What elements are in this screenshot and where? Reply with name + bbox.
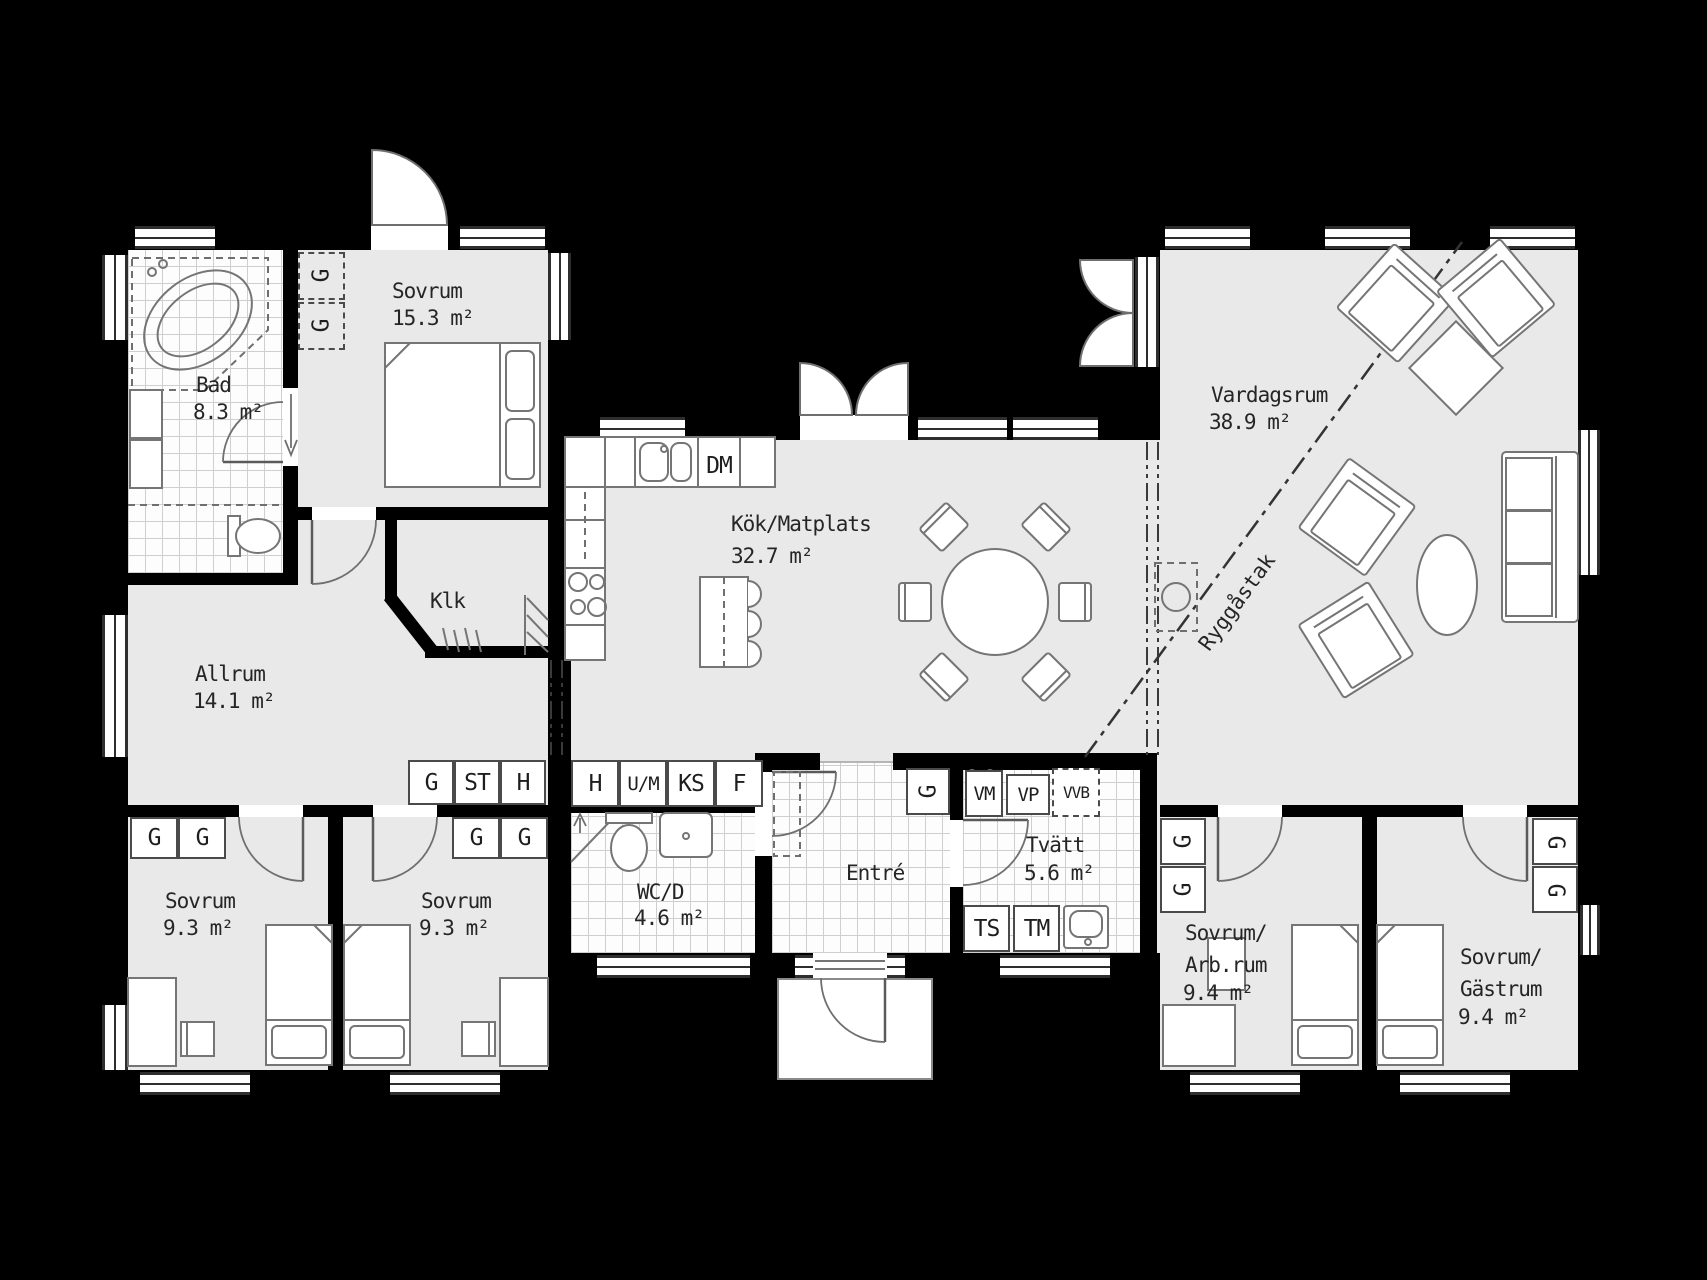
closet-label: G [196,825,209,851]
door-gap-arbrum [1218,805,1282,817]
label-sovrum-v-area: 9.3 m² [163,915,233,941]
label-wcd-area: 4.6 m² [634,905,704,931]
cabinet-label: H [589,771,602,797]
closet-label: G [1170,835,1196,848]
vvb-label: VVB [1063,783,1089,802]
door-gap-bedroom-left-2 [373,805,437,817]
closet-label: H [517,770,530,796]
door-gap-sovrum-stor [312,507,376,520]
label-vardagsrum-name: Vardagsrum [1211,382,1327,408]
closet-g-bedroom-left-1b: G [178,817,226,859]
window-gastrum-right [1580,905,1600,955]
closet-label: G [1170,883,1196,896]
wall-under-kitchen-cabinets [571,807,772,813]
closet-label: G [308,270,334,283]
washer-vm: VM [965,770,1003,817]
window-livingroom-top-2 [1325,226,1410,249]
vp-label: VP [1018,784,1039,806]
wall-klk-left [385,520,397,600]
label-sovrum-stor-area: 15.3 m² [392,305,474,331]
cabinet-kok-ks: KS [667,760,715,807]
dryingcabinet-ts: TS [963,905,1010,952]
dishwasher-dm: DM [698,448,740,484]
label-gastrum-line1: Sovrum/ [1460,944,1542,970]
label-kok-name: Kök/Matplats [731,511,871,537]
wall-bedrooms-left-divider [328,817,343,1070]
wall-right-exterior [1578,225,1600,1095]
closet-g-sovrum-stor-1: G [298,252,345,300]
window-livingroom-top-3 [1490,226,1575,249]
window-livingroom-top-1 [1165,226,1250,249]
floor-kitchen [571,440,1147,763]
label-klk: Klk [430,588,465,614]
label-sovrum-h-area: 9.3 m² [419,915,489,941]
window-bedroom-left-2 [390,1072,500,1095]
closet-g-bedroom-left-1a: G [130,817,178,859]
label-gastrum-line2: Gästrum [1460,976,1542,1002]
closet-label: G [1542,835,1568,848]
closet-g-arbrum-1: G [1160,818,1206,865]
closet-row-allrum-st: ST [454,760,500,805]
label-sovrum-stor-name: Sovrum [392,278,462,304]
tm-label: TM [1024,916,1050,942]
cabinet-label: U/M [627,773,658,795]
cabinet-label: KS [678,771,704,797]
closet-label: G [425,770,438,796]
door-entre-main [813,953,887,978]
closet-g-arbrum-2: G [1160,866,1206,913]
closet-row-allrum-g: G [408,760,454,805]
sidelight-entre-right [887,955,905,978]
cabinet-kok-h: H [571,760,619,807]
wall-entre-top-left [755,753,820,770]
cabinet-label: F [733,771,746,797]
label-arbrum-line1: Sovrum/ [1185,920,1267,946]
door-gap-gastrum [1463,805,1527,817]
window-allrum-left [102,615,128,757]
tumbledryer-tm: TM [1013,905,1060,952]
window-sovrum-stor-top [460,226,545,249]
door-gap-bad [283,388,298,466]
window-sovrum-stor-right [548,253,571,340]
closet-label: G [915,785,941,798]
closet-g-bedroom-left-2b: G [500,817,548,859]
window-bedroom-left-1 [140,1072,250,1095]
window-matplats-2 [1013,417,1098,440]
cabinet-kok-um: U/M [619,760,667,807]
door-livingroom-west [1135,257,1159,367]
waterheater-vvb: VVB [1052,768,1100,817]
heatpump-vp: VP [1006,774,1050,815]
label-allrum-name: Allrum [195,661,265,687]
window-kitchen-1 [600,417,685,440]
window-bad-left [102,255,128,340]
label-tvatt-area: 5.6 m² [1024,860,1094,886]
label-arbrum-area: 9.4 m² [1183,980,1253,1006]
wall-bad-bottom [102,573,298,585]
window-livingroom-right [1578,430,1600,575]
closet-label: G [518,825,531,851]
window-bedroom-left-corner [102,1005,128,1070]
closet-label: G [470,825,483,851]
label-allrum-area: 14.1 m² [193,688,275,714]
wall-tvatt-right [1140,770,1157,953]
door-gap-bedroom-left-1 [239,805,303,817]
label-bad-name: Bad [196,372,231,398]
window-bad-top [135,226,215,249]
wall-bedrooms-left-top [128,805,571,817]
sidelight-entre-left [795,955,813,978]
label-vardagsrum-area: 38.9 m² [1209,409,1291,435]
vm-label: VM [974,783,995,805]
label-sovrum-v-name: Sovrum [165,888,235,914]
label-bad-area: 8.3 m² [193,399,263,425]
closet-label: G [148,825,161,851]
label-tvatt-name: Tvätt [1026,832,1084,858]
wall-bedrooms-right-divider [1362,817,1377,1070]
closet-g-gastrum-2: G [1532,866,1578,913]
door-wedges-livingroom-west [1080,260,1133,366]
closet-g-bedroom-left-2a: G [452,817,500,859]
window-tvatt-south [1000,955,1110,978]
label-arbrum-line2: Arb.rum [1185,952,1267,978]
window-arbrum-south [1190,1072,1300,1095]
window-gastrum-south [1400,1072,1510,1095]
cabinet-kok-f: F [715,760,763,807]
entry-porch [777,978,933,1080]
door-kitchen-terrace [800,415,908,440]
closet-g-sovrum-stor-2: G [298,302,345,350]
door-sovrum-stor-exterior [371,225,448,250]
ts-label: TS [974,916,1000,942]
window-matplats-1 [918,417,1007,440]
closet-row-allrum-h: H [500,760,546,805]
label-kok-area: 32.7 m² [731,543,813,569]
door-wedges-kitchen-terrace [800,363,908,415]
closet-label: G [308,320,334,333]
door-wedge-sovrum-stor [372,150,447,225]
label-wcd-name: WC/D [637,879,684,905]
window-wcd-south [597,955,750,978]
label-entre: Entré [846,860,904,886]
door-gap-tvatt [950,820,963,887]
label-gastrum-area: 9.4 m² [1458,1004,1528,1030]
label-sovrum-h-name: Sovrum [421,888,491,914]
dm-label: DM [706,453,732,479]
closet-g-entre: G [906,768,950,815]
closet-label: ST [464,770,490,796]
closet-label: G [1542,883,1568,896]
closet-g-gastrum-1: G [1532,818,1578,865]
floorplan-canvas: G G G ST H H U/M KS F DM G G G G G VM VP… [0,0,1707,1280]
